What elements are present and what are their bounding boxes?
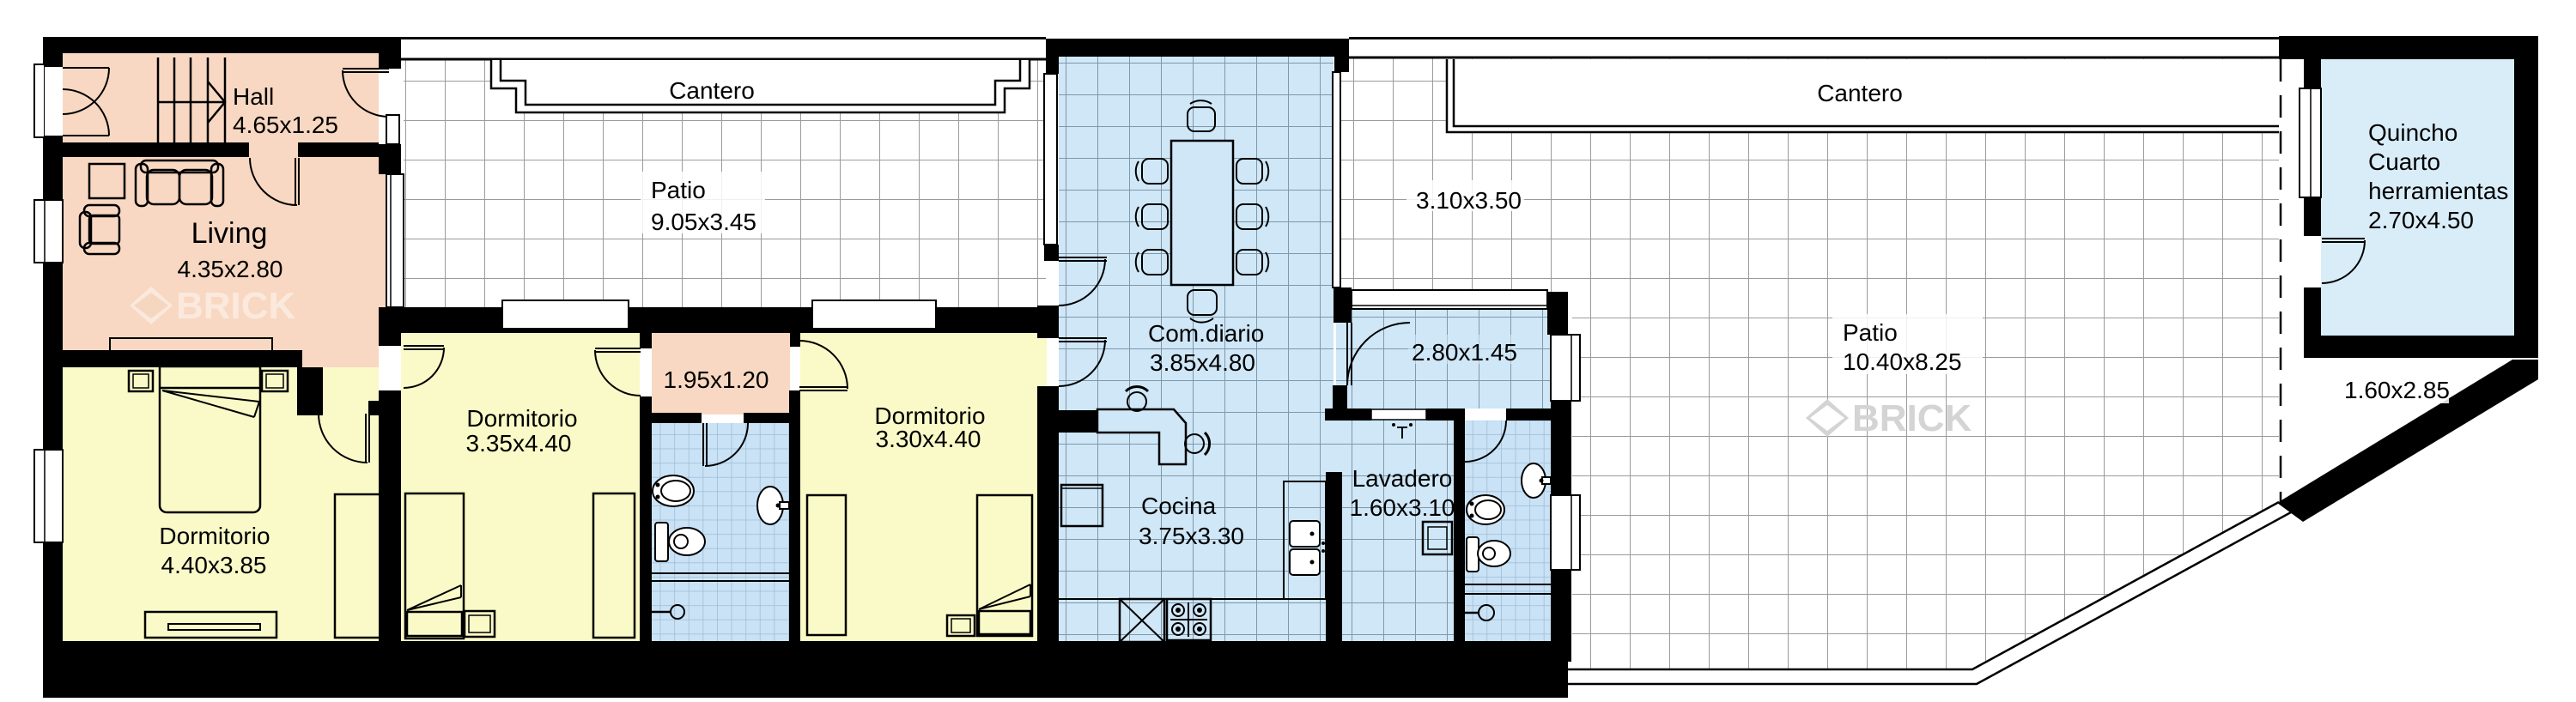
svg-text:Cocina: Cocina: [1141, 493, 1217, 519]
svg-text:Com.diario: Com.diario: [1148, 320, 1264, 347]
svg-text:Living: Living: [191, 217, 268, 250]
svg-text:4.35x2.80: 4.35x2.80: [178, 256, 283, 282]
svg-text:9.05x3.45: 9.05x3.45: [651, 209, 756, 235]
svg-text:Cantero: Cantero: [1817, 80, 1903, 106]
svg-text:2.70x4.50: 2.70x4.50: [2368, 207, 2474, 233]
svg-text:3.10x3.50: 3.10x3.50: [1416, 187, 1522, 214]
svg-text:3.30x4.40: 3.30x4.40: [876, 426, 981, 452]
svg-text:herramientas: herramientas: [2368, 178, 2508, 204]
svg-text:2.80x1.45: 2.80x1.45: [1412, 339, 1517, 366]
svg-text:4.40x3.85: 4.40x3.85: [161, 552, 267, 578]
svg-text:1.95x1.20: 1.95x1.20: [664, 366, 769, 393]
svg-text:Cuarto: Cuarto: [2368, 148, 2440, 175]
svg-text:BRICK: BRICK: [176, 285, 296, 327]
svg-text:Lavadero: Lavadero: [1352, 465, 1453, 492]
svg-text:3.35x4.40: 3.35x4.40: [466, 430, 572, 457]
svg-text:Dormitorio: Dormitorio: [466, 405, 577, 432]
svg-text:BRICK: BRICK: [1852, 397, 1972, 439]
svg-text:10.40x8.25: 10.40x8.25: [1843, 348, 1962, 375]
svg-text:3.85x4.80: 3.85x4.80: [1150, 349, 1255, 376]
svg-text:Hall: Hall: [233, 83, 274, 110]
svg-text:3.75x3.30: 3.75x3.30: [1139, 523, 1244, 549]
svg-text:Cantero: Cantero: [669, 77, 755, 104]
svg-text:1.60x2.85: 1.60x2.85: [2344, 377, 2450, 403]
svg-text:1.60x3.10: 1.60x3.10: [1350, 494, 1455, 521]
svg-text:Patio: Patio: [651, 177, 706, 203]
svg-text:Dormitorio: Dormitorio: [159, 523, 270, 549]
svg-text:4.65x1.25: 4.65x1.25: [233, 112, 338, 138]
svg-text:Patio: Patio: [1843, 319, 1898, 346]
svg-text:Quincho: Quincho: [2368, 119, 2458, 146]
